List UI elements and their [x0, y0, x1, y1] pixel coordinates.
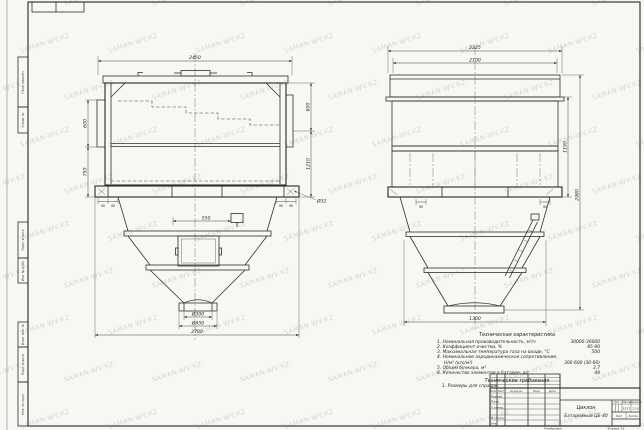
margin-box-label: Справ. № [21, 112, 25, 127]
dim-front-right-upper: 600 [306, 103, 312, 112]
dim-side-height-mid: 1190 [563, 141, 569, 153]
dim-front-foot: 90 [101, 204, 105, 208]
drawing-sheet: SAMAN-WV.KZSAMAN-WV.KZSAMAN-WV.KZSAMAN-W… [0, 0, 644, 430]
dim-front-foot: 90 [111, 204, 115, 208]
dim-front-foot: 90 [289, 204, 293, 208]
margin-box-label: Взам. инв. № [21, 324, 25, 345]
dim-front-left-lower: 750 [83, 168, 89, 177]
title-block-col: № докум. [510, 390, 523, 393]
title-block-row: Н.контр. [491, 416, 504, 420]
lit-label: Лит. [614, 400, 620, 404]
spec-label: 6. Количество элементов в батарее, шт. [437, 371, 531, 376]
dim-side-width-bottom: 1300 [469, 316, 481, 322]
title-block-col: Изм. [491, 389, 497, 393]
dim-front-outlet-inner: Ø300 [191, 311, 204, 318]
dim-side-foot: 90 [419, 205, 423, 209]
dim-side-width-inner: 2100 [469, 58, 481, 64]
scale-value: 1:10 [632, 407, 639, 411]
dim-front-width-top: 2450 [189, 55, 201, 61]
specs-title: Техническая характеристика [434, 332, 600, 338]
title-block-row: Разраб. [491, 394, 503, 398]
margin-stamps: Перв. примен. Справ. № Подп. и дата Инв.… [18, 57, 28, 426]
side-view-dimensions: 2225 2100 90 90 1190 2980 [388, 45, 584, 326]
title-block-col: Подп. [533, 389, 541, 393]
spec-item: 6. Количество элементов в батарее, шт. 4… [434, 371, 600, 376]
margin-box-label: Перв. примен. [21, 70, 25, 93]
margin-box-label: Инв. № подл. [21, 393, 25, 414]
margin-box-label: Подп. и дата [21, 354, 25, 375]
title-block-row: Пров. [491, 400, 500, 404]
dim-front-inset: 550 [202, 216, 211, 222]
spec-value: 48 [591, 371, 600, 376]
dim-front-foot: 90 [279, 204, 283, 208]
dim-front-outlet-outer: Ø450 [191, 320, 204, 327]
sheet-label: Лист [616, 414, 623, 418]
technical-characteristics: Техническая характеристика 1. Номинальна… [434, 332, 600, 389]
margin-box-label: Инв. № дубл. [21, 260, 25, 281]
title-block-row: Т.контр. [490, 405, 504, 409]
title-block-row: Утв. [491, 422, 497, 426]
dim-front-width-bottom: 2700 [191, 329, 203, 335]
side-view [386, 46, 564, 330]
dim-front-right-lower: 1210 [306, 158, 312, 170]
dim-side-foot: 90 [543, 205, 547, 209]
drawing-name-line2: Батарейный ЦБ-40 [564, 413, 608, 419]
front-view [95, 53, 299, 340]
dim-front-hole: Ø32 [316, 198, 327, 205]
dim-front-left-upper: 600 [83, 119, 89, 128]
margin-box-label: Подп. и дата [21, 229, 25, 250]
drawing-name-line1: Циклон [577, 405, 596, 411]
copied-label: Копировал [544, 426, 561, 430]
format-label: Формат А1 [607, 426, 624, 430]
scale-label: Масштаб [630, 400, 642, 404]
requirement-item: 1. Размеры для справок. [434, 384, 600, 389]
sheets-label: Листов [628, 414, 638, 418]
title-block-col: Лист [498, 389, 505, 393]
dim-side-width-top: 2225 [469, 45, 481, 51]
mass-value: 2217 [623, 407, 631, 411]
dim-side-height-overall: 2980 [575, 189, 581, 201]
title-block-col: Дата [549, 389, 556, 393]
